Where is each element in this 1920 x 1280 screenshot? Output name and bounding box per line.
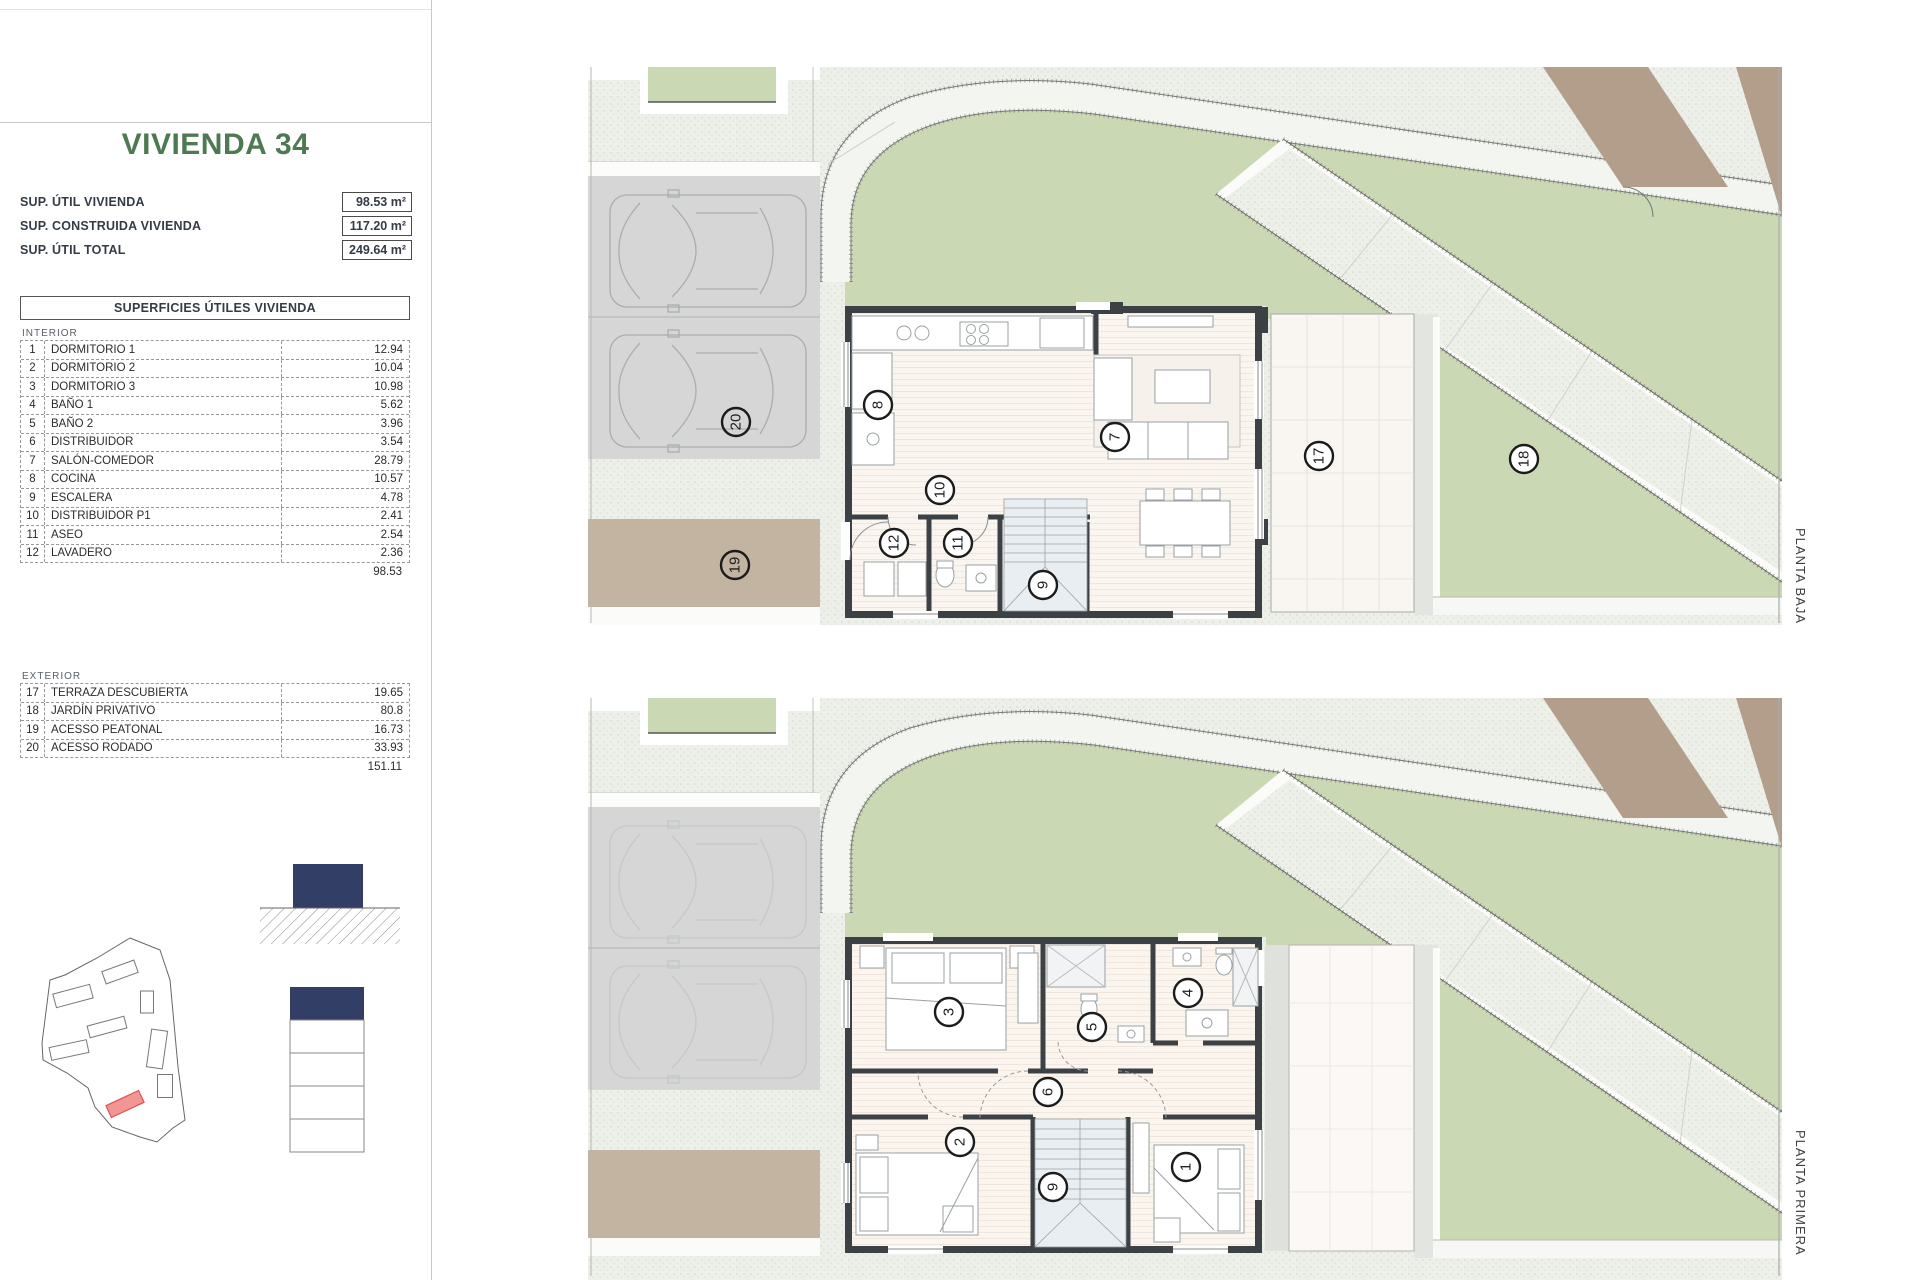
row-name: ESCALERA — [45, 489, 281, 507]
row-number: 10 — [21, 508, 45, 526]
table-row: 19 ACESSO PEATONAL 16.73 — [21, 721, 409, 740]
row-value: 3.96 — [281, 415, 409, 433]
svg-text:9: 9 — [1035, 581, 1052, 589]
row-value: 2.36 — [281, 545, 409, 563]
row-number: 7 — [21, 452, 45, 470]
row-name: COCINA — [45, 471, 281, 489]
row-number: 9 — [21, 489, 45, 507]
row-value: 3.54 — [281, 434, 409, 452]
svg-text:9: 9 — [1045, 1183, 1062, 1191]
room-label-distribuidor: 10 — [926, 476, 954, 504]
parking-margin — [588, 162, 820, 176]
svg-text:8: 8 — [870, 401, 887, 409]
interior-section-label: INTERIOR — [22, 328, 410, 339]
table-row: 10 DISTRIBUIDOR P1 2.41 — [21, 508, 409, 527]
table-row: 3 DORMITORIO 3 10.98 — [21, 378, 409, 397]
row-number: 12 — [21, 545, 45, 563]
svg-text:18: 18 — [1516, 451, 1533, 468]
room-label-dormitorio3: 3 — [935, 998, 963, 1026]
row-name: BAÑO 2 — [45, 415, 281, 433]
row-number: 17 — [21, 684, 45, 702]
row-number: 1 — [21, 341, 45, 359]
table-row: 2 DORMITORIO 2 10.04 — [21, 360, 409, 379]
summary-label: SUP. CONSTRUIDA VIVIENDA — [20, 219, 342, 233]
plan-planta-baja: 8 7 10 12 11 9 17 18 19 20 — [588, 67, 1782, 625]
room-label-cocina: 8 — [864, 391, 892, 419]
exterior-rows: 17 TERRAZA DESCUBIERTA 19.65 18 JARDÍN P… — [20, 683, 410, 758]
row-number: 5 — [21, 415, 45, 433]
svg-text:19: 19 — [727, 557, 744, 574]
row-value: 2.54 — [281, 526, 409, 544]
svg-text:1: 1 — [1178, 1163, 1195, 1171]
room-label-bano1: 4 — [1174, 979, 1202, 1007]
header-rule — [0, 122, 431, 123]
room-label-terraza: 17 — [1305, 442, 1333, 470]
row-number: 6 — [21, 434, 45, 452]
areas-table: SUPERFICIES ÚTILES VIVIENDA INTERIOR 1 D… — [20, 296, 410, 578]
interior-total: 98.53 — [20, 563, 410, 578]
table-row: 17 TERRAZA DESCUBIERTA 19.65 — [21, 684, 409, 703]
table-row: 6 DISTRIBUIDOR 3.54 — [21, 434, 409, 453]
row-name: BAÑO 1 — [45, 397, 281, 415]
section-key-icon — [255, 858, 405, 950]
site-key-map — [35, 930, 200, 1165]
row-name: DORMITORIO 1 — [45, 341, 281, 359]
table-row: 8 COCINA 10.57 — [21, 471, 409, 490]
row-value: 10.98 — [281, 378, 409, 396]
room-label-escalera: 9 — [1039, 1173, 1067, 1201]
row-value: 10.04 — [281, 360, 409, 378]
row-value: 2.41 — [281, 508, 409, 526]
room-label-lavadero: 12 — [880, 529, 908, 557]
page-title: VIVIENDA 34 — [0, 128, 431, 162]
row-number: 18 — [21, 703, 45, 721]
svg-text:5: 5 — [1084, 1023, 1101, 1031]
room-label-salon: 7 — [1101, 423, 1129, 451]
row-number: 19 — [21, 721, 45, 739]
row-name: SALÓN-COMEDOR — [45, 452, 281, 470]
svg-text:3: 3 — [941, 1008, 958, 1016]
summary-row: SUP. ÚTIL VIVIENDA 98.53 m² — [20, 190, 412, 214]
row-name: DORMITORIO 3 — [45, 378, 281, 396]
svg-text:2: 2 — [952, 1138, 969, 1146]
table-row: 11 ASEO 2.54 — [21, 526, 409, 545]
row-name: DISTRIBUIDOR P1 — [45, 508, 281, 526]
row-name: ASEO — [45, 526, 281, 544]
exterior-total: 151.11 — [20, 758, 410, 773]
interior-rows: 1 DORMITORIO 1 12.94 2 DORMITORIO 2 10.0… — [20, 340, 410, 563]
room-label-escalera: 9 — [1029, 571, 1057, 599]
pedestrian-access — [588, 1150, 820, 1238]
table-row: 9 ESCALERA 4.78 — [21, 489, 409, 508]
sidebar-divider — [431, 0, 432, 1280]
summary-row: SUP. CONSTRUIDA VIVIENDA 117.20 m² — [20, 214, 412, 238]
summary-label: SUP. ÚTIL VIVIENDA — [20, 195, 342, 209]
table-row: 12 LAVADERO 2.36 — [21, 545, 409, 563]
row-value: 16.73 — [281, 721, 409, 739]
row-value: 19.65 — [281, 684, 409, 702]
areas-table-title: SUPERFICIES ÚTILES VIVIENDA — [20, 296, 410, 320]
summary-value: 249.64 m² — [342, 240, 412, 260]
row-number: 4 — [21, 397, 45, 415]
row-number: 11 — [21, 526, 45, 544]
row-value: 4.78 — [281, 489, 409, 507]
room-label-aseo: 11 — [944, 529, 972, 557]
terrace — [1271, 314, 1414, 612]
svg-text:6: 6 — [1040, 1088, 1057, 1096]
svg-text:20: 20 — [728, 414, 745, 431]
row-name: DORMITORIO 2 — [45, 360, 281, 378]
terrace-roof — [1265, 945, 1414, 1251]
row-name: DISTRIBUIDOR — [45, 434, 281, 452]
room-label-bano2: 5 — [1078, 1013, 1106, 1041]
svg-text:7: 7 — [1107, 433, 1124, 441]
summary-label: SUP. ÚTIL TOTAL — [20, 243, 342, 257]
row-value: 28.79 — [281, 452, 409, 470]
room-label-distribuidor: 6 — [1034, 1078, 1062, 1106]
plan-planta-primera: 3 5 4 6 2 9 1 — [588, 698, 1782, 1280]
summary-value: 98.53 m² — [342, 192, 412, 212]
top-rule — [0, 9, 431, 10]
svg-text:10: 10 — [932, 482, 949, 499]
plan-baja-side-label: PLANTA BAJA — [1793, 528, 1808, 624]
svg-text:17: 17 — [1311, 448, 1328, 465]
exterior-section-label: EXTERIOR — [22, 671, 410, 682]
row-name: TERRAZA DESCUBIERTA — [45, 684, 281, 702]
plan-primera-side-label: PLANTA PRIMERA — [1793, 1130, 1808, 1256]
table-row: 4 BAÑO 1 5.62 — [21, 397, 409, 416]
room-label-dormitorio1: 1 — [1172, 1153, 1200, 1181]
table-row: 1 DORMITORIO 1 12.94 — [21, 341, 409, 360]
room-label-jardin: 18 — [1510, 445, 1538, 473]
row-name: JARDÍN PRIVATIVO — [45, 703, 281, 721]
row-number: 8 — [21, 471, 45, 489]
table-row: 5 BAÑO 2 3.96 — [21, 415, 409, 434]
row-value: 12.94 — [281, 341, 409, 359]
table-row: 20 ACESSO RODADO 33.93 — [21, 740, 409, 758]
table-row: 18 JARDÍN PRIVATIVO 80.8 — [21, 703, 409, 722]
sidebar: VIVIENDA 34 SUP. ÚTIL VIVIENDA 98.53 m² … — [0, 0, 431, 1280]
floor-level-key — [288, 985, 368, 1155]
svg-text:11: 11 — [950, 535, 967, 551]
row-value: 10.57 — [281, 471, 409, 489]
table-row: 7 SALÓN-COMEDOR 28.79 — [21, 452, 409, 471]
row-name: LAVADERO — [45, 545, 281, 563]
row-number: 2 — [21, 360, 45, 378]
parking-margin — [588, 793, 820, 807]
row-number: 3 — [21, 378, 45, 396]
row-number: 20 — [21, 740, 45, 758]
exterior-table: EXTERIOR 17 TERRAZA DESCUBIERTA 19.65 18… — [20, 663, 410, 773]
row-value: 33.93 — [281, 740, 409, 758]
row-value: 5.62 — [281, 397, 409, 415]
svg-text:4: 4 — [1180, 989, 1197, 997]
summary-value: 117.20 m² — [342, 216, 412, 236]
row-value: 80.8 — [281, 703, 409, 721]
row-name: ACESSO RODADO — [45, 740, 281, 758]
summary-row: SUP. ÚTIL TOTAL 249.64 m² — [20, 238, 412, 262]
pedestrian-access — [588, 519, 820, 607]
row-name: ACESSO PEATONAL — [45, 721, 281, 739]
svg-text:12: 12 — [886, 535, 903, 552]
house-planta-baja — [841, 302, 1268, 619]
room-label-dormitorio2: 2 — [946, 1128, 974, 1156]
